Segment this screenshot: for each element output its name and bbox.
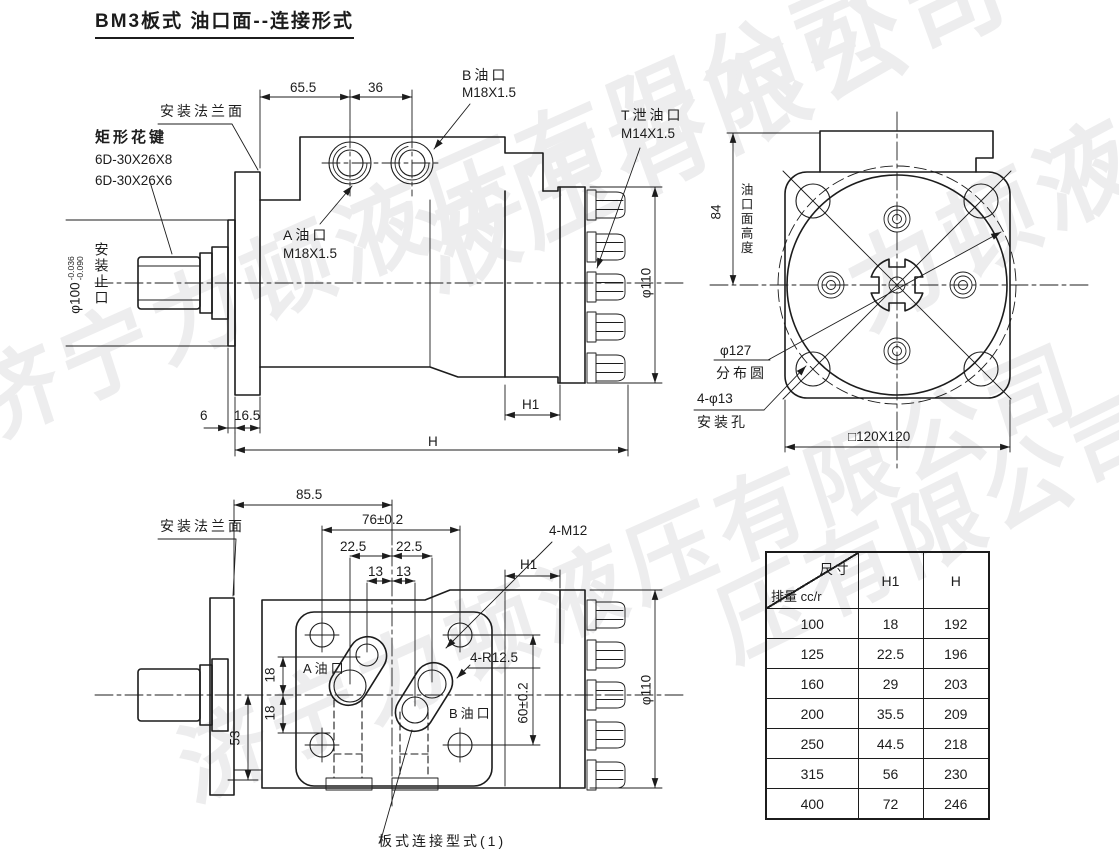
table-corner-displacement: 排量 cc/r bbox=[771, 586, 822, 605]
plate-type-label: 板式连接型式(1) bbox=[378, 833, 506, 851]
mount-hole-dia-label: 4-φ13 bbox=[697, 391, 733, 408]
cell-displacement: 250 bbox=[766, 729, 858, 759]
dim-18-top-label: 18 bbox=[263, 667, 280, 682]
spigot-label: 安装止口 bbox=[92, 242, 110, 306]
dim-h1-label: H1 bbox=[522, 397, 539, 414]
front-view-geometry bbox=[694, 112, 1090, 472]
dim-h-label: H bbox=[428, 434, 438, 451]
dim-76-label: 76±0.2 bbox=[362, 512, 403, 529]
dim-6-label: 6 bbox=[200, 408, 208, 425]
cell-h1: 22.5 bbox=[858, 639, 923, 669]
port-b-thread-label: M18X1.5 bbox=[462, 85, 516, 102]
spline-title-label: 矩形花键 bbox=[95, 129, 167, 148]
table-col-h: H bbox=[923, 552, 989, 609]
bolt-circle-label: 分布圆 bbox=[716, 365, 767, 383]
table-row: 400 72 246 bbox=[766, 789, 989, 820]
drawing-canvas: 济宁力顿液压有限公司 液压有限公司 力顿液压 济宁力顿液压有限公司 压有限公司 bbox=[0, 0, 1119, 859]
cell-h1: 18 bbox=[858, 609, 923, 639]
page-title: BM3板式 油口面--连接形式 bbox=[95, 10, 354, 39]
cell-h1: 44.5 bbox=[858, 729, 923, 759]
dim-16-5-label: 16.5 bbox=[234, 408, 260, 425]
dia-110-label: φ110 bbox=[639, 675, 656, 705]
dim-h1-label: H1 bbox=[520, 557, 537, 574]
cell-h1: 72 bbox=[858, 789, 923, 820]
port-b-label: B油口 bbox=[462, 67, 508, 85]
flange-face-label: 安装法兰面 bbox=[160, 518, 245, 536]
port-a-label: A油口 bbox=[283, 227, 329, 245]
dim-85-5-label: 85.5 bbox=[296, 487, 322, 504]
cell-displacement: 400 bbox=[766, 789, 858, 820]
dim-65-5-label: 65.5 bbox=[290, 80, 316, 97]
dim-18-bottom-label: 18 bbox=[263, 705, 280, 720]
cell-h: 218 bbox=[923, 729, 989, 759]
shaft-dia-value: φ100 bbox=[68, 282, 83, 313]
cell-h: 196 bbox=[923, 639, 989, 669]
cell-h: 209 bbox=[923, 699, 989, 729]
table-col-h1: H1 bbox=[858, 552, 923, 609]
cell-displacement: 200 bbox=[766, 699, 858, 729]
cell-h: 203 bbox=[923, 669, 989, 699]
dia-110-label: φ110 bbox=[639, 268, 656, 298]
cell-h1: 29 bbox=[858, 669, 923, 699]
port-t-thread-label: M14X1.5 bbox=[621, 126, 675, 143]
port-a-thread-label: M18X1.5 bbox=[283, 246, 337, 263]
cell-h1: 56 bbox=[858, 759, 923, 789]
table-row: 200 35.5 209 bbox=[766, 699, 989, 729]
dim-53-label: 53 bbox=[228, 730, 245, 745]
dim-22-5-right-label: 22.5 bbox=[396, 539, 422, 556]
port-a-label: A油口 bbox=[303, 661, 347, 677]
shaft-diameter-label: φ100-0.036-0.090 bbox=[67, 256, 85, 313]
cell-displacement: 100 bbox=[766, 609, 858, 639]
dimension-table: 尺寸 排量 cc/r H1 H 100 18 192 125 22.5 196 … bbox=[765, 551, 990, 820]
spline-spec2-label: 6D-30X26X6 bbox=[95, 173, 172, 190]
table-row: 250 44.5 218 bbox=[766, 729, 989, 759]
cell-displacement: 160 bbox=[766, 669, 858, 699]
slot-radius-label: 4-R12.5 bbox=[470, 650, 518, 667]
table-row: 125 22.5 196 bbox=[766, 639, 989, 669]
square-dim-label: □120X120 bbox=[848, 429, 910, 446]
dim-60-label: 60±0.2 bbox=[516, 682, 533, 723]
port-face-height-label: 油口面高度 bbox=[737, 183, 753, 256]
spline-spec1-label: 6D-30X26X8 bbox=[95, 152, 172, 169]
dim-84-label: 84 bbox=[709, 204, 726, 219]
dim-22-5-left-label: 22.5 bbox=[340, 539, 366, 556]
cell-h1: 35.5 bbox=[858, 699, 923, 729]
table-row: 160 29 203 bbox=[766, 669, 989, 699]
port-t-label: T泄油口 bbox=[621, 107, 684, 125]
table-row: 100 18 192 bbox=[766, 609, 989, 639]
flange-face-label: 安装法兰面 bbox=[160, 103, 245, 121]
table-corner-cell: 尺寸 排量 cc/r bbox=[766, 552, 858, 609]
port-b-label: B油口 bbox=[449, 706, 493, 722]
dim-13-left-label: 13 bbox=[368, 564, 383, 581]
dim-13-right-label: 13 bbox=[396, 564, 411, 581]
dim-36-label: 36 bbox=[368, 80, 383, 97]
cell-displacement: 125 bbox=[766, 639, 858, 669]
table-corner-size: 尺寸 bbox=[820, 558, 851, 578]
bottom-view-geometry bbox=[95, 500, 685, 843]
cell-h: 246 bbox=[923, 789, 989, 820]
cell-h: 192 bbox=[923, 609, 989, 639]
shaft-tol-lower: -0.090 bbox=[76, 256, 85, 280]
cell-displacement: 315 bbox=[766, 759, 858, 789]
mount-hole-label: 安装孔 bbox=[697, 414, 748, 432]
table-row: 315 56 230 bbox=[766, 759, 989, 789]
cell-h: 230 bbox=[923, 759, 989, 789]
bolt-circle-dia-label: φ127 bbox=[720, 343, 751, 360]
thread-holes-label: 4-M12 bbox=[549, 523, 587, 540]
